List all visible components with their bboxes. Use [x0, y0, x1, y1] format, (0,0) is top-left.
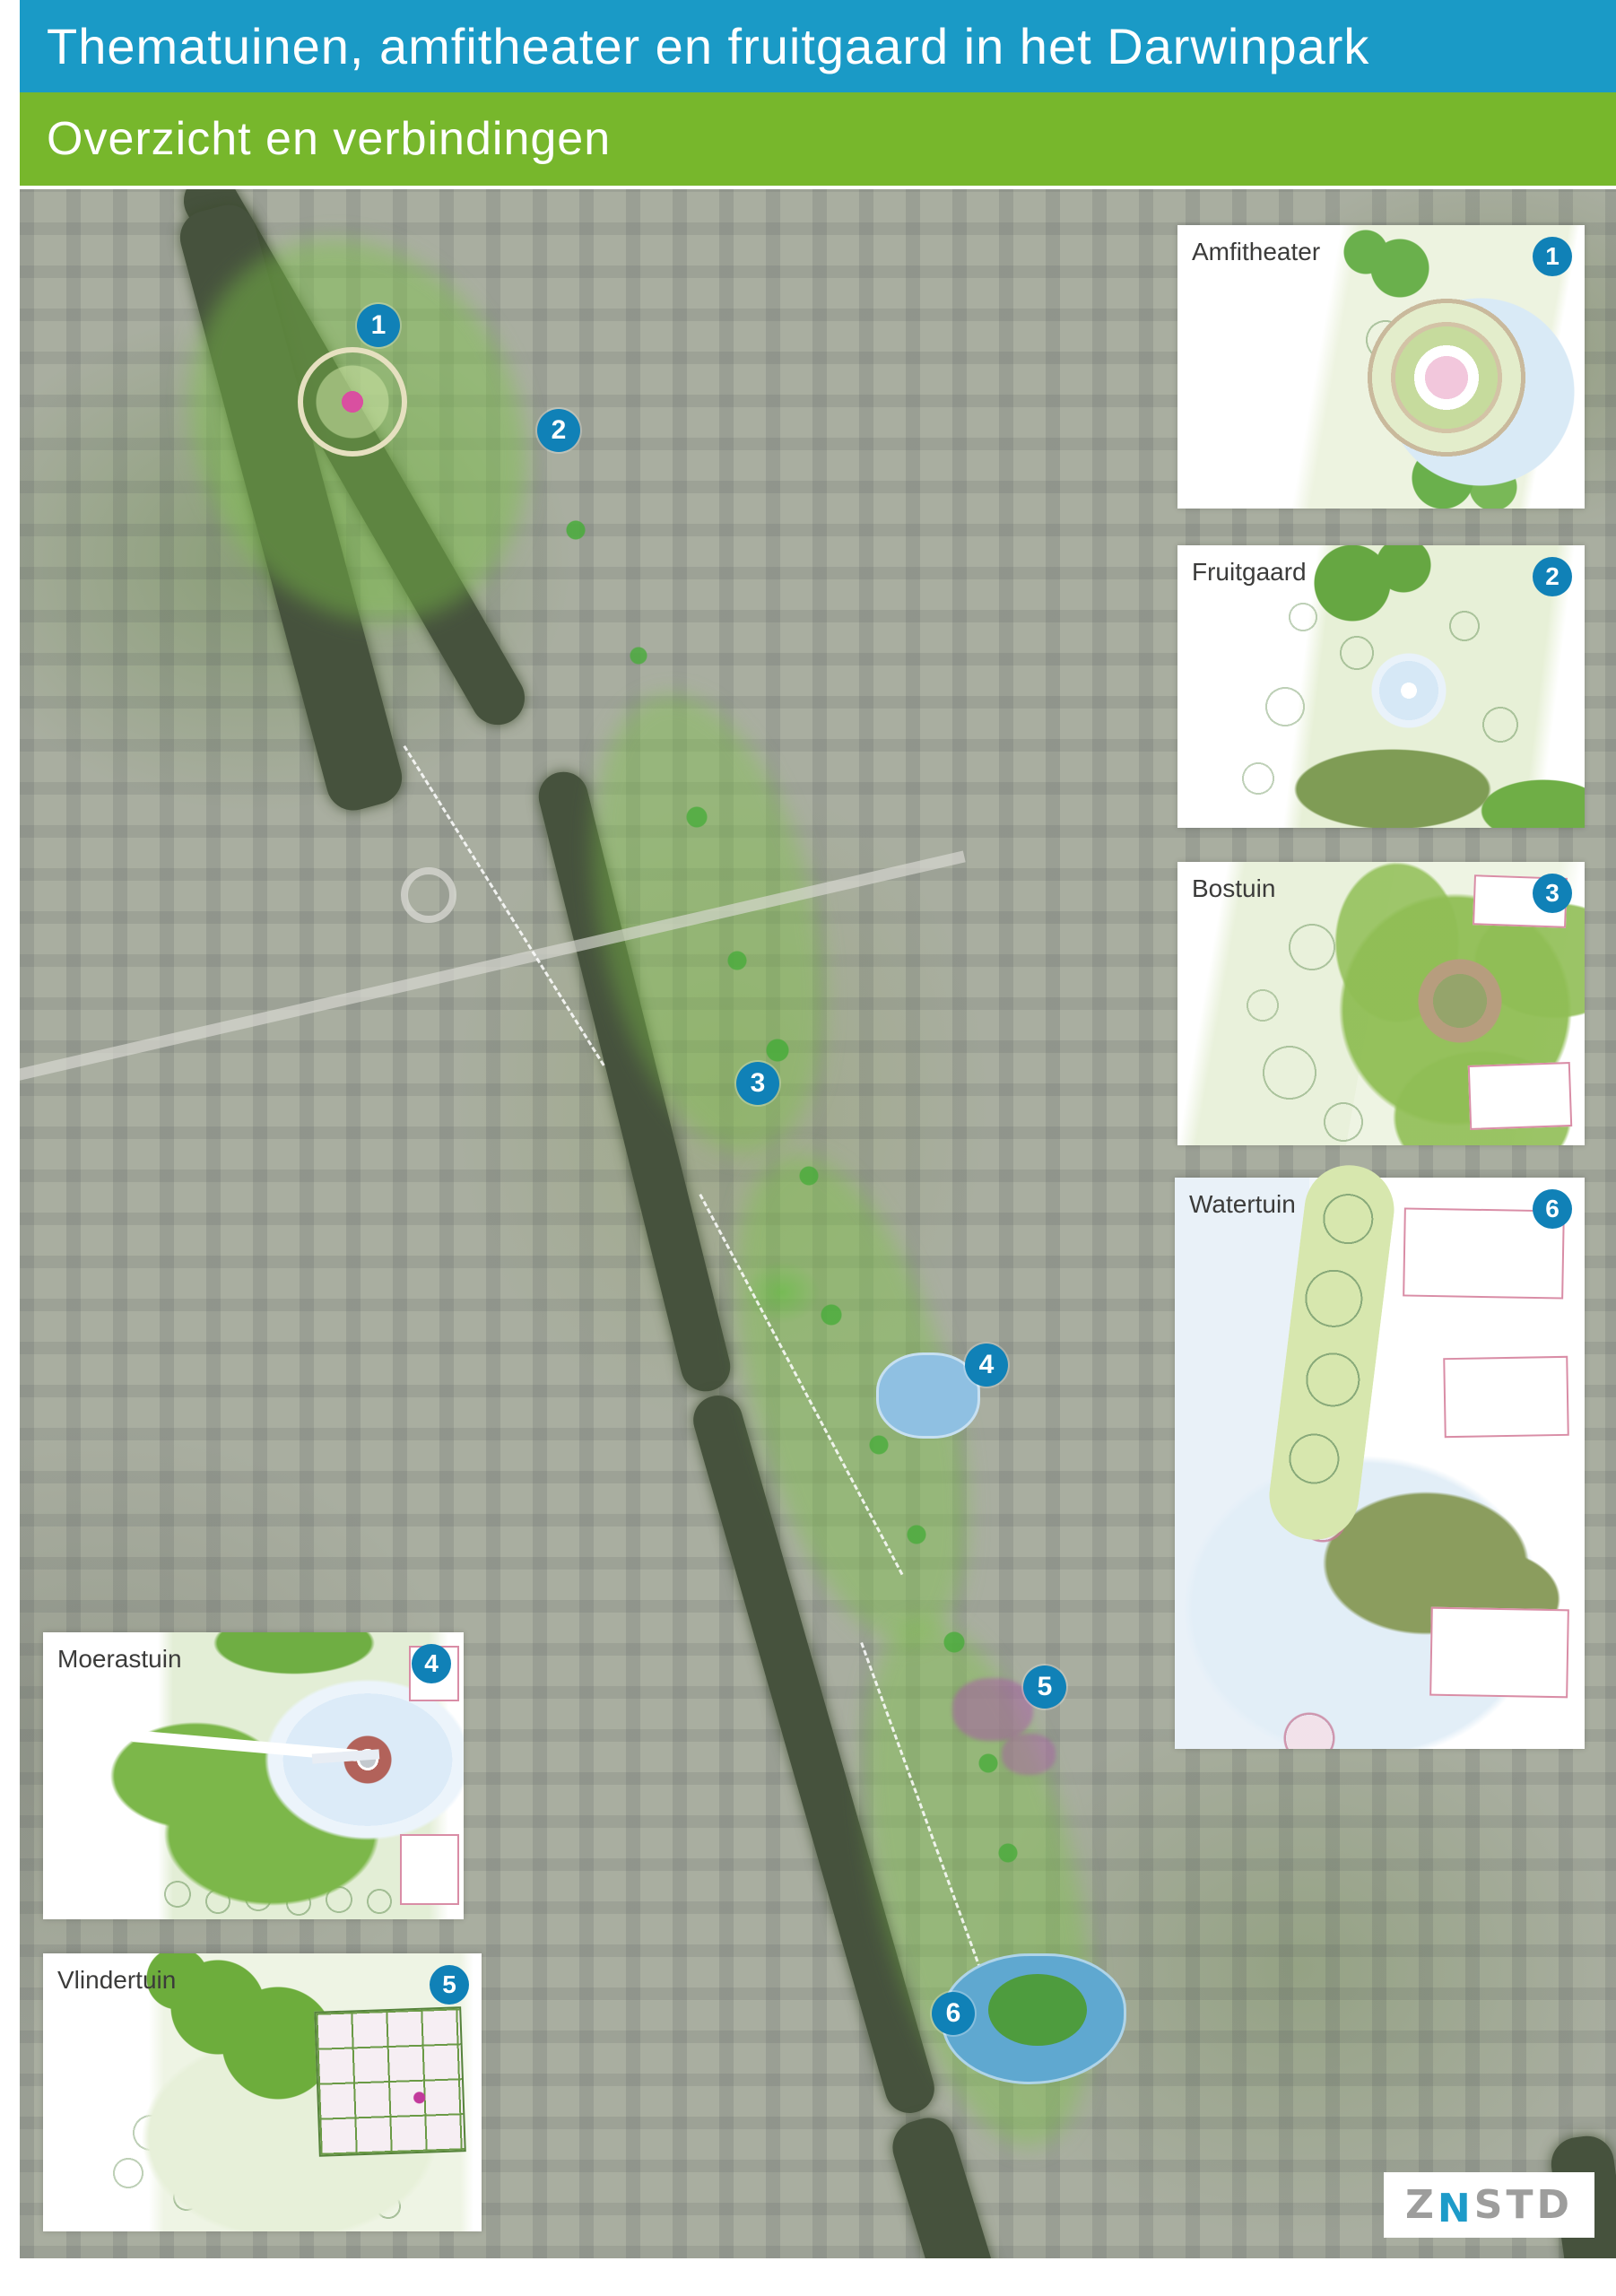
marker-number: 1 [371, 310, 387, 341]
map-marker-3: 3 [736, 1062, 779, 1105]
inset-panel-moerastuin: Moerastuin 4 [43, 1632, 464, 1919]
building-outline [1429, 1607, 1569, 1699]
badge-number: 3 [1545, 879, 1560, 908]
znstd-logo: ZNSTD [1384, 2172, 1594, 2238]
map-marker-5: 5 [1023, 1665, 1066, 1709]
marker-number: 4 [979, 1350, 995, 1380]
page-title: Thematuinen, amfitheater en fruitgaard i… [20, 17, 1369, 75]
park-overlay-central [555, 674, 863, 1175]
marker-number: 5 [1038, 1672, 1053, 1702]
title-bar: Thematuinen, amfitheater en fruitgaard i… [20, 0, 1616, 92]
panel-label: Amfitheater [1192, 238, 1320, 266]
building-outline [1443, 1356, 1569, 1438]
roundabout [401, 867, 456, 923]
map-marker-6: 6 [932, 1992, 975, 2035]
panel-label: Bostuin [1192, 874, 1275, 903]
vlindertuin-flowerbed-overlay-2 [1002, 1734, 1056, 1775]
badge-number: 1 [1545, 242, 1560, 271]
inset-panel-amfitheater: Amfitheater 1 [1177, 225, 1585, 509]
logo-letters-std: STD [1474, 2182, 1573, 2228]
inset-panel-fruitgaard: Fruitgaard 2 [1177, 545, 1585, 828]
panel-number-badge: 2 [1533, 557, 1572, 596]
marker-number: 3 [751, 1068, 766, 1099]
badge-number: 2 [1545, 562, 1560, 591]
marker-number: 6 [946, 1998, 961, 2029]
poster-page: Thematuinen, amfitheater en fruitgaard i… [0, 0, 1616, 2296]
amphitheater-circle-overlay [298, 347, 407, 457]
badge-number: 5 [442, 1970, 456, 1999]
panel-number-badge: 3 [1533, 874, 1572, 913]
inset-panel-watertuin: Watertuin 6 [1175, 1178, 1585, 1749]
panel-label: Watertuin [1189, 1190, 1296, 1219]
butterfly-garden-grid [314, 2006, 466, 2157]
panel-label: Vlindertuin [57, 1966, 176, 1995]
panel-label: Fruitgaard [1192, 558, 1307, 587]
map-marker-1: 1 [357, 304, 400, 347]
map-marker-2: 2 [537, 409, 580, 452]
logo-letter-z: Z [1405, 2182, 1438, 2228]
inset-panel-vlindertuin: Vlindertuin 5 [43, 1953, 482, 2231]
panel-label: Moerastuin [57, 1645, 182, 1674]
map-marker-4: 4 [965, 1344, 1008, 1387]
panel-number-badge: 1 [1533, 237, 1572, 276]
inset-panel-bostuin: Bostuin 3 [1177, 862, 1585, 1145]
watertuin-island-overlay [988, 1974, 1087, 2046]
panel-number-badge: 6 [1533, 1189, 1572, 1229]
plan-drawing-fruitgaard [1177, 545, 1585, 828]
plan-drawing-amfitheater [1177, 225, 1585, 509]
badge-number: 4 [424, 1649, 439, 1678]
page-subtitle: Overzicht en verbindingen [20, 112, 611, 166]
vlindertuin-flowerbed-overlay [952, 1678, 1033, 1741]
panel-number-badge: 4 [412, 1644, 451, 1683]
badge-number: 6 [1545, 1195, 1560, 1223]
building-outline [1468, 1062, 1572, 1130]
building-outline [400, 1834, 459, 1905]
subtitle-bar: Overzicht en verbindingen [20, 92, 1616, 186]
logo-letter-n: N [1438, 2186, 1474, 2231]
panel-number-badge: 5 [430, 1965, 469, 2005]
marker-number: 2 [552, 415, 567, 446]
